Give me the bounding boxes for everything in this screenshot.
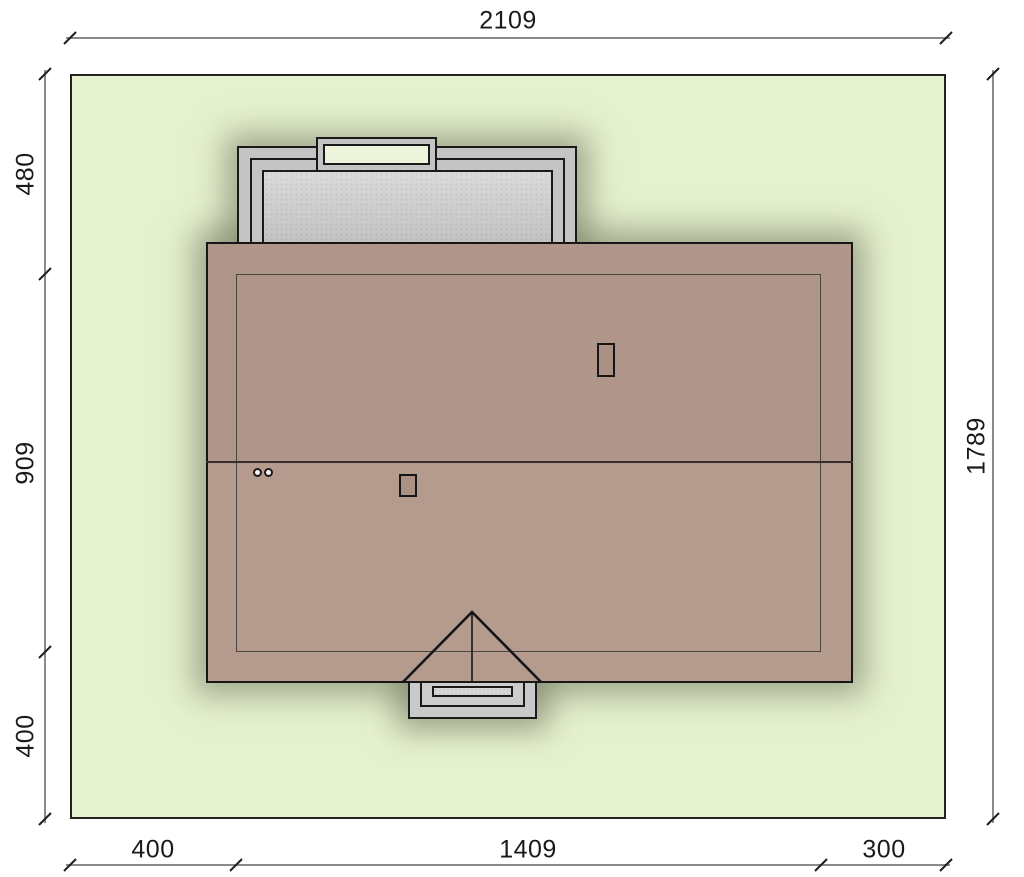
dimension-line-right [992,70,994,823]
dimension-line-left [44,70,46,823]
dimension-label-bottom-center: 1409 [499,838,557,863]
dimension-label-top: 2109 [479,9,537,34]
dimension-label-left-top: 480 [14,152,39,195]
vent-pipe-icon [253,468,262,477]
dimension-label-right: 1789 [965,417,990,475]
dimension-label-bottom-right: 300 [862,838,905,863]
dimension-label-left-bottom: 400 [14,714,39,757]
eaves-overhang-line [236,274,821,652]
vent-pipe-icon [264,468,273,477]
dimension-line-top [66,37,950,39]
site-plan-canvas: 2109 400 1409 300 480 909 400 1789 [0,0,1024,877]
terrace-paving [262,170,553,244]
dimension-label-left-middle: 909 [14,441,39,484]
entry-gable-roof [396,606,546,684]
rear-landing-step [323,144,430,165]
roof-ridge-line [206,461,853,463]
chimney-icon [399,474,417,497]
dimension-label-bottom-left: 400 [131,838,174,863]
entry-steps-inner [432,686,513,697]
chimney-icon [597,343,615,377]
